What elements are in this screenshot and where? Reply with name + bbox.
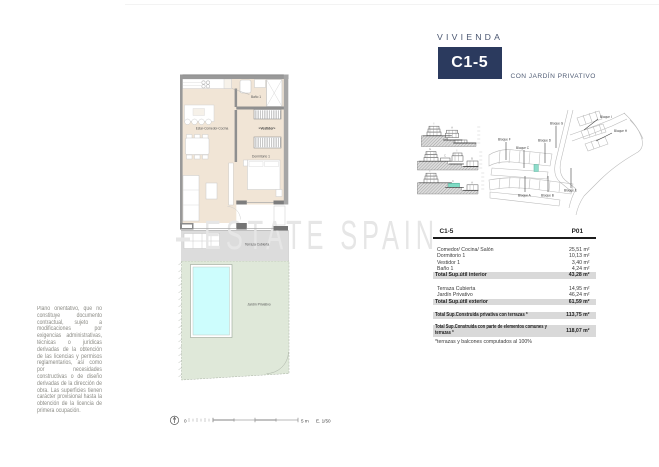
svg-text:G: G <box>429 148 431 151</box>
svg-text:Bloque C: Bloque C <box>516 146 530 150</box>
svg-text:Bloque E: Bloque E <box>564 189 577 193</box>
svg-text:5 m: 5 m <box>301 418 309 423</box>
svg-text:I: I <box>430 170 431 173</box>
svg-text:A: A <box>471 182 473 185</box>
svg-text:C: C <box>452 180 454 183</box>
svg-text:I: I <box>434 123 435 126</box>
svg-text:E. 1/50: E. 1/50 <box>316 418 331 423</box>
svg-text:Terraza Cubierta: Terraza Cubierta <box>245 243 270 247</box>
svg-text:Jardín Privativo: Jardín Privativo <box>247 303 270 307</box>
svg-text:Bloque F: Bloque F <box>498 138 511 142</box>
svg-text:B: B <box>471 158 473 161</box>
svg-text:Baño 1: Baño 1 <box>251 95 261 99</box>
svg-text:Bloque A: Bloque A <box>518 194 532 198</box>
svg-text:Estar-Comedor-Cocina: Estar-Comedor-Cocina <box>196 126 229 130</box>
svg-text:Bloque G: Bloque G <box>550 122 564 126</box>
svg-text:0: 0 <box>184 418 187 423</box>
svg-text:Bloque H: Bloque H <box>614 129 628 133</box>
svg-text:Dormitorio 1: Dormitorio 1 <box>252 155 270 159</box>
svg-text:Bloque B: Bloque B <box>541 194 554 198</box>
svg-text:C: C <box>444 155 446 158</box>
svg-text:Bloque I: Bloque I <box>600 115 612 119</box>
svg-text:Bloque D: Bloque D <box>538 139 552 143</box>
svg-text:≈Vestidor≈: ≈Vestidor≈ <box>259 127 276 131</box>
svg-text:A: A <box>451 127 453 130</box>
svg-text:ESTATE SPAIN: ESTATE SPAIN <box>204 213 439 259</box>
svg-text:I: I <box>457 150 458 153</box>
